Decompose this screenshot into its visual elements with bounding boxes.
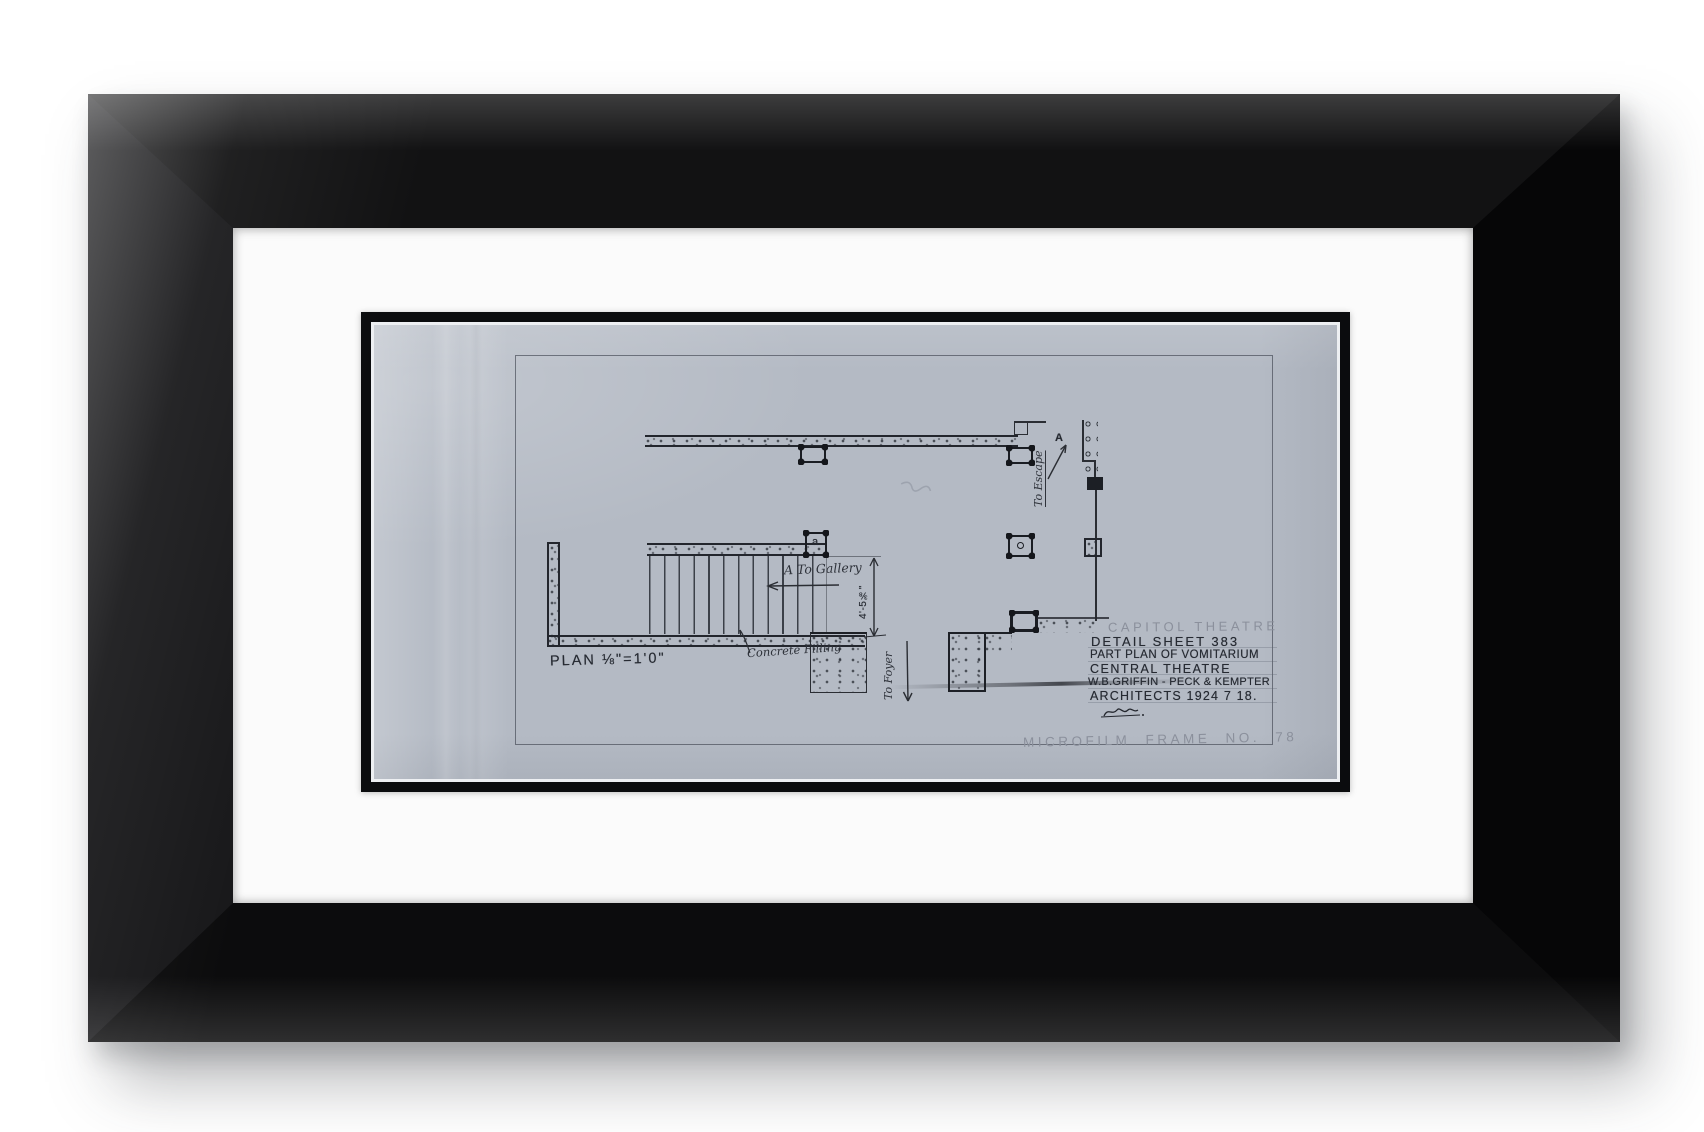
foyer-arrow-icon [898, 639, 916, 709]
gallery-arrow-icon [762, 579, 844, 593]
title-line-sheet: DETAIL SHEET 383 [1091, 634, 1239, 649]
section-marker-a: A [1055, 432, 1064, 444]
title-line-architect-names: W.B.GRIFFIN - PECK & KEMPTER [1088, 676, 1270, 688]
sheet-crease-streak [432, 325, 460, 779]
foyer-wall-band [984, 632, 1012, 652]
mid-column [1008, 535, 1033, 557]
left-wall [547, 542, 560, 647]
column-stub [1014, 421, 1028, 435]
title-line-theatre: CENTRAL THEATRE [1090, 662, 1231, 676]
title-line-architects-date: ARCHITECTS 1924 7 18. [1090, 689, 1258, 703]
stair-newel-column: a [805, 532, 827, 556]
framed-artwork-photo: To Escape A a [0, 0, 1704, 1132]
top-wall-column-mid [800, 446, 826, 463]
picture-frame: To Escape A a [88, 94, 1620, 1042]
foyer-wall-band-right [1038, 619, 1097, 633]
plan-scale-label: PLAN ⅛"=1'0" [550, 650, 666, 669]
to-foyer-label: To Foyer [882, 644, 895, 700]
title-line-plan: PART PLAN OF VOMITARIUM [1090, 649, 1259, 661]
stub-tick-line [1014, 421, 1046, 423]
title-project-pencil: CAPITOL THEATRE [1108, 618, 1279, 634]
sheet-crease-streak [470, 325, 482, 779]
stair-stringer [647, 543, 827, 556]
print-black-border: To Escape A a [361, 312, 1350, 792]
foyer-wall-column [1010, 611, 1038, 632]
mat-board: To Escape A a [233, 228, 1473, 903]
top-wall-column-end [1008, 447, 1033, 464]
escape-stair-block [1087, 477, 1103, 490]
wall-axis-block [1084, 538, 1102, 557]
drawing-sheet: To Escape A a [374, 325, 1337, 779]
dimension-text: 4'-5⅜" [858, 571, 869, 619]
top-wall [645, 435, 1018, 447]
signature-mark [1100, 703, 1146, 721]
to-gallery-label: A To Gallery [784, 560, 862, 578]
column-mark-label: a [812, 536, 818, 548]
